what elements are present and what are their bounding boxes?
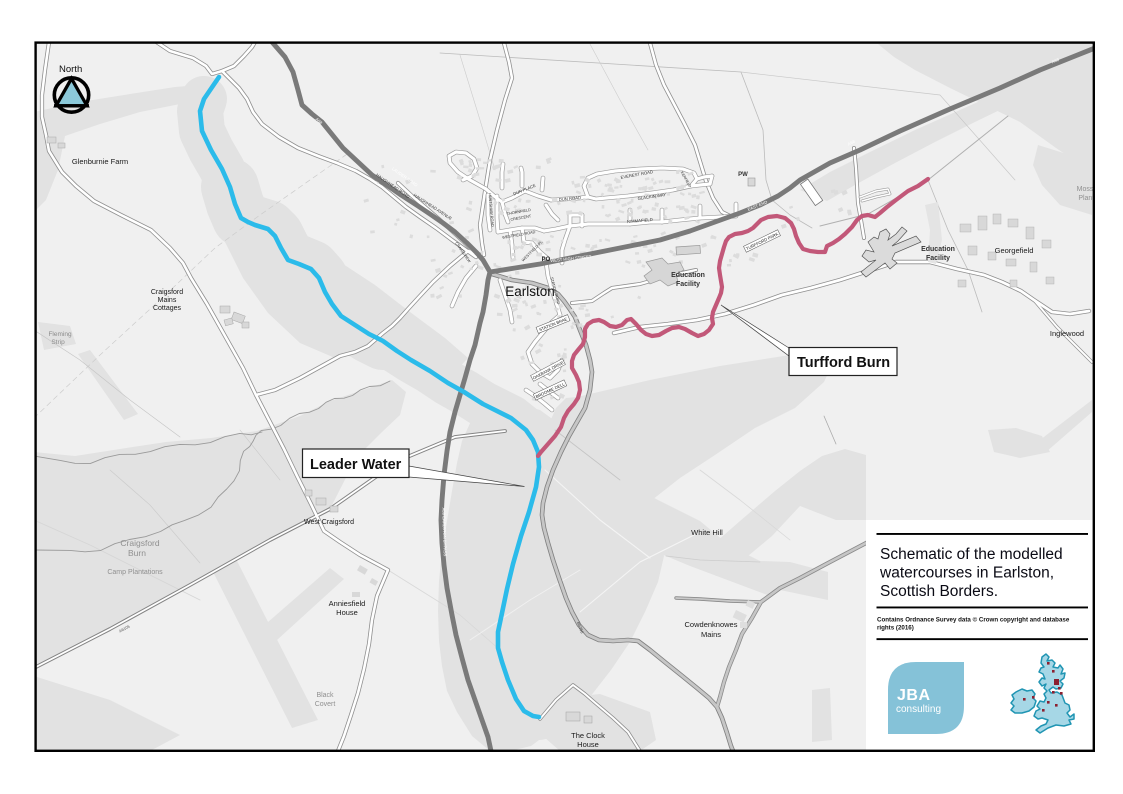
svg-text:PW: PW	[738, 172, 748, 178]
svg-text:consulting: consulting	[896, 704, 941, 715]
svg-text:Schematic of the modelled: Schematic of the modelled	[880, 546, 1063, 563]
svg-text:rights (2016): rights (2016)	[877, 625, 914, 632]
svg-text:Mains: Mains	[158, 297, 177, 304]
svg-text:Black: Black	[316, 692, 334, 699]
svg-text:Glenburnie Farm: Glenburnie Farm	[72, 157, 128, 166]
svg-text:Earlston: Earlston	[505, 284, 555, 299]
svg-text:Moss: Moss	[1077, 186, 1094, 193]
svg-text:North: North	[59, 64, 82, 75]
svg-text:Craigsford: Craigsford	[120, 538, 159, 548]
svg-text:The Clock: The Clock	[571, 731, 605, 740]
svg-text:Strip: Strip	[51, 339, 65, 346]
svg-text:House: House	[577, 740, 599, 749]
svg-text:House: House	[336, 608, 358, 617]
svg-text:Plantati: Plantati	[1078, 195, 1102, 202]
svg-text:Burn: Burn	[128, 548, 146, 558]
svg-text:Fleming: Fleming	[48, 331, 72, 338]
svg-text:Camp Plantations: Camp Plantations	[107, 569, 163, 576]
svg-text:Georgefield: Georgefield	[995, 246, 1034, 255]
svg-text:Craigsford: Craigsford	[151, 289, 183, 296]
svg-text:Leader Water: Leader Water	[310, 457, 402, 473]
svg-text:Scottish Borders.: Scottish Borders.	[880, 583, 998, 600]
svg-text:Inglewood: Inglewood	[1050, 329, 1084, 338]
svg-text:Education: Education	[921, 246, 955, 253]
svg-text:Turfford Burn: Turfford Burn	[797, 355, 890, 371]
svg-text:JBA: JBA	[897, 687, 931, 704]
svg-text:Education: Education	[671, 272, 705, 279]
svg-text:White Hill: White Hill	[691, 528, 723, 537]
svg-text:Mains: Mains	[701, 630, 721, 639]
svg-text:Cowdenknowes: Cowdenknowes	[685, 620, 738, 629]
svg-text:Covert: Covert	[315, 701, 336, 708]
svg-text:PO: PO	[542, 257, 551, 263]
svg-text:Cottages: Cottages	[153, 305, 182, 312]
svg-text:Anniesfield: Anniesfield	[329, 599, 366, 608]
svg-text:Contains Ordnance Survey data: Contains Ordnance Survey data © Crown co…	[877, 617, 1070, 624]
svg-text:Facility: Facility	[926, 255, 950, 262]
svg-text:Facility: Facility	[676, 281, 700, 288]
svg-text:West Craigsford: West Craigsford	[304, 519, 354, 526]
svg-text:watercourses in Earlston,: watercourses in Earlston,	[879, 565, 1054, 582]
